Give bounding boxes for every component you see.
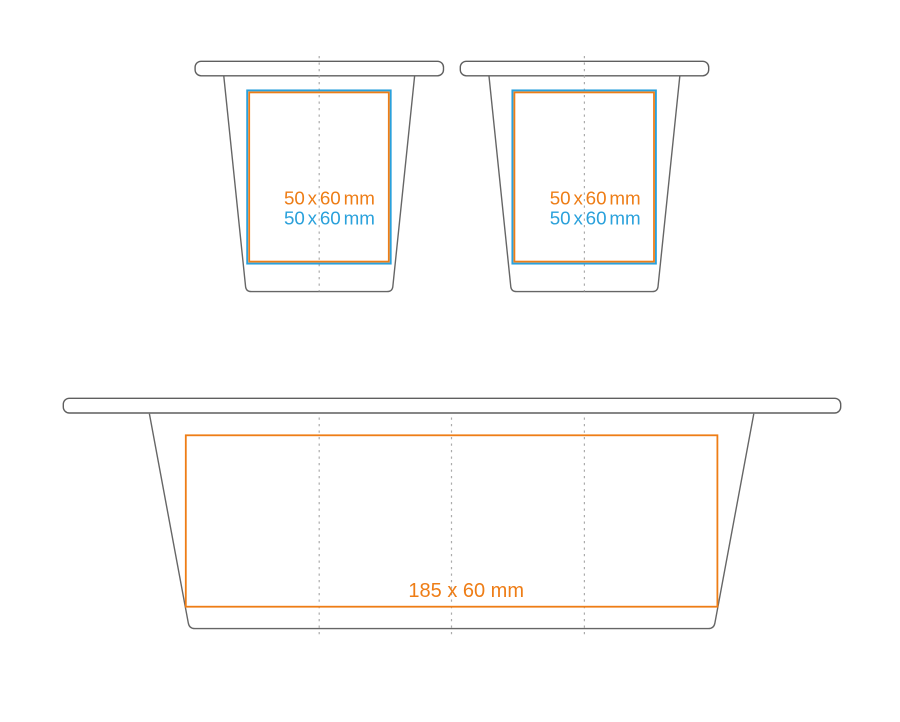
svg-text:50 x 60 mm: 50 x 60 mm: [284, 207, 375, 228]
svg-text:50 x 60 mm: 50 x 60 mm: [550, 187, 641, 208]
svg-text:50 x 60 mm: 50 x 60 mm: [284, 187, 375, 208]
svg-text:50 x 60 mm: 50 x 60 mm: [550, 207, 641, 228]
svg-text:185 x 60 mm: 185 x 60 mm: [408, 580, 524, 602]
